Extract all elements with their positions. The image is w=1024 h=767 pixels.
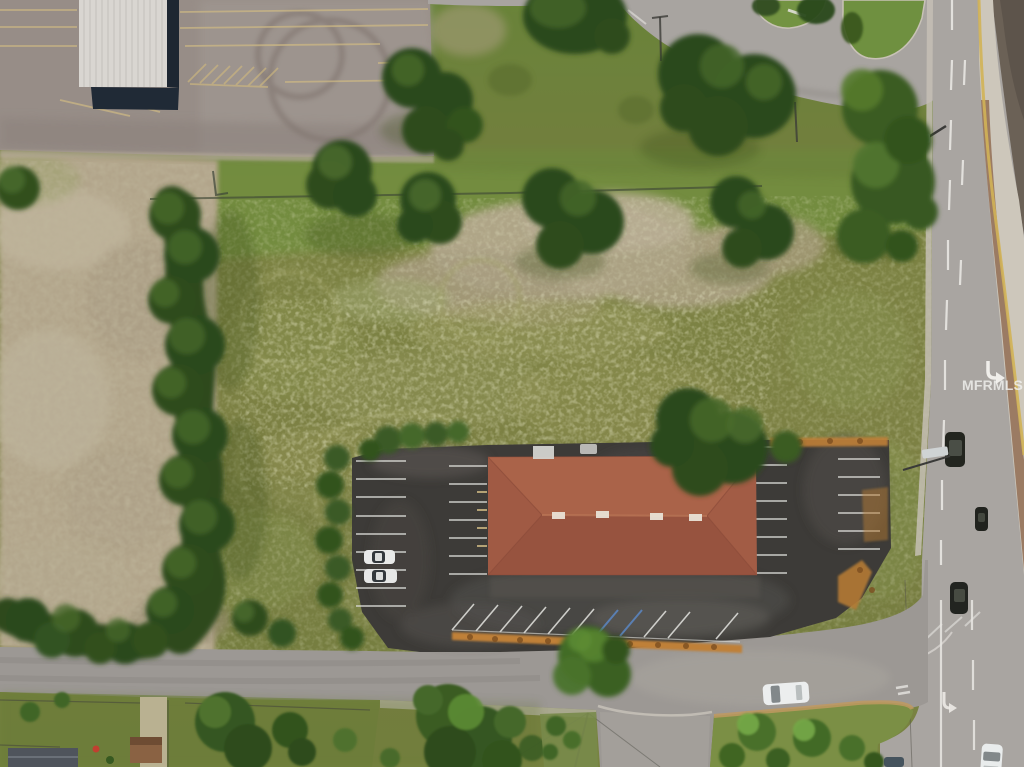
svg-text:MFRMLS: MFRMLS: [962, 377, 1023, 393]
